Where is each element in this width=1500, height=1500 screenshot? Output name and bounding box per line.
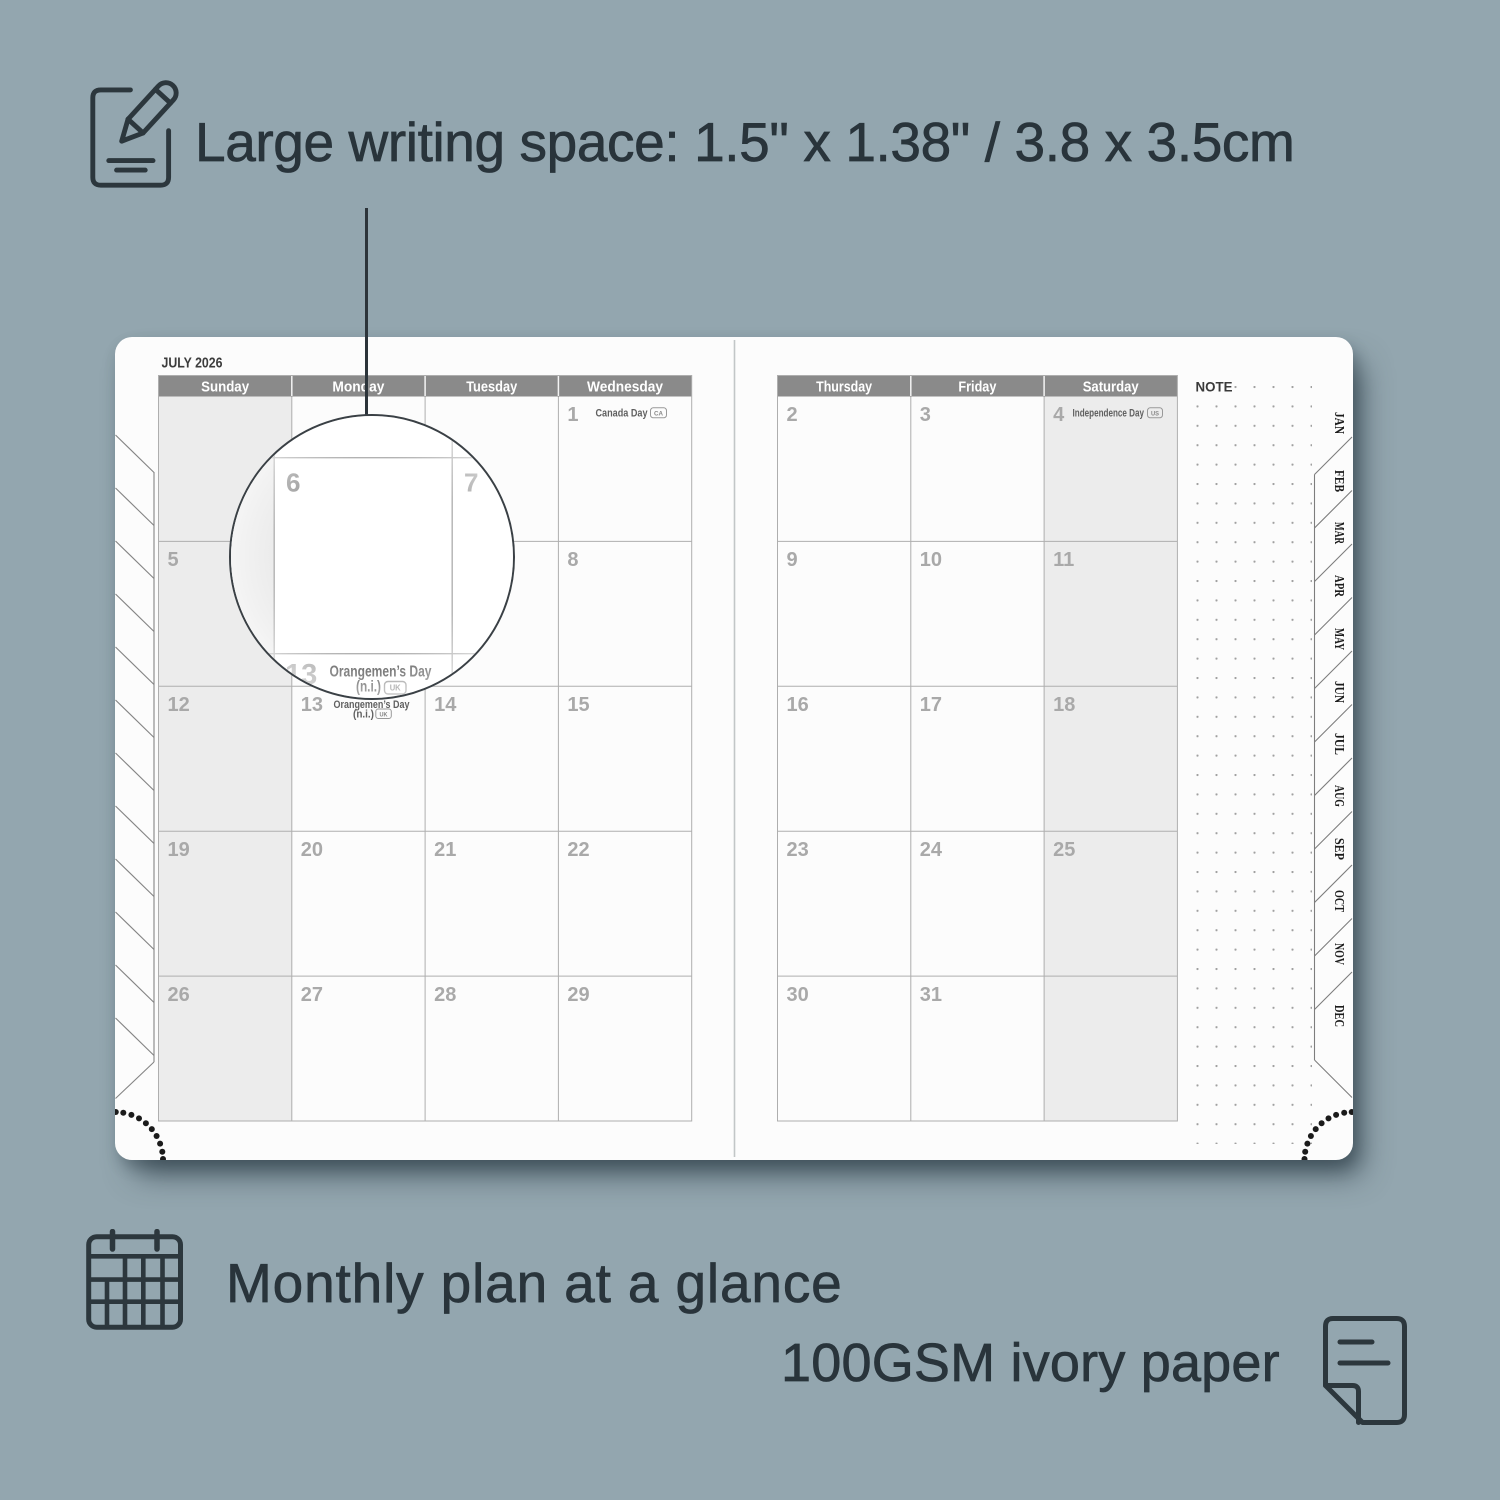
svg-text:MAR: MAR — [1331, 522, 1346, 545]
svg-text:(n.i.): (n.i.) — [353, 709, 374, 721]
svg-text:1: 1 — [567, 404, 578, 426]
svg-text:MAY: MAY — [1331, 628, 1346, 650]
svg-text:JUL: JUL — [1331, 733, 1346, 755]
svg-text:18: 18 — [1053, 694, 1075, 716]
svg-text:Independence Day: Independence Day — [1072, 408, 1144, 420]
svg-text:16: 16 — [786, 694, 808, 716]
svg-text:Thursday: Thursday — [816, 379, 873, 396]
svg-text:12: 12 — [167, 694, 189, 716]
svg-text:30: 30 — [786, 984, 808, 1006]
svg-text:JUN: JUN — [1331, 681, 1346, 703]
svg-text:11: 11 — [1053, 549, 1074, 571]
svg-text:27: 27 — [300, 984, 322, 1006]
svg-text:2: 2 — [786, 404, 797, 426]
svg-text:Friday: Friday — [958, 379, 997, 396]
svg-text:FEB: FEB — [1331, 470, 1346, 492]
svg-text:Canada Day: Canada Day — [595, 408, 648, 420]
svg-text:JULY 2026: JULY 2026 — [161, 356, 222, 372]
svg-text:Sunday: Sunday — [201, 379, 250, 396]
svg-text:23: 23 — [786, 839, 808, 861]
svg-text:20: 20 — [300, 839, 322, 861]
svg-text:3: 3 — [919, 404, 930, 426]
svg-text:8: 8 — [567, 549, 578, 571]
svg-text:15: 15 — [567, 694, 589, 716]
svg-text:Saturday: Saturday — [1082, 379, 1139, 396]
svg-text:OCT: OCT — [1331, 890, 1346, 912]
svg-text:AUG: AUG — [1331, 785, 1346, 807]
svg-text:NOTE: NOTE — [1195, 380, 1232, 395]
svg-text:21: 21 — [434, 839, 456, 861]
svg-text:17: 17 — [919, 694, 941, 716]
svg-text:26: 26 — [167, 984, 189, 1006]
svg-text:5: 5 — [167, 549, 178, 571]
svg-text:UK: UK — [379, 713, 388, 719]
svg-text:CA: CA — [654, 411, 663, 418]
svg-text:31: 31 — [919, 984, 941, 1006]
svg-text:DEC: DEC — [1331, 1005, 1346, 1027]
svg-text:29: 29 — [567, 984, 589, 1006]
svg-text:9: 9 — [786, 549, 797, 571]
svg-text:10: 10 — [919, 549, 941, 571]
svg-text:APR: APR — [1331, 575, 1346, 598]
svg-text:US: US — [1151, 411, 1160, 418]
svg-text:19: 19 — [167, 839, 189, 861]
svg-text:4: 4 — [1053, 404, 1065, 426]
svg-text:14: 14 — [434, 694, 457, 716]
svg-text:JAN: JAN — [1331, 412, 1346, 434]
svg-text:Wednesday: Wednesday — [587, 379, 664, 396]
svg-text:SEP: SEP — [1331, 838, 1346, 860]
svg-text:Tuesday: Tuesday — [466, 379, 518, 396]
svg-text:Monday: Monday — [332, 379, 385, 396]
svg-text:NOV: NOV — [1331, 943, 1346, 965]
svg-text:22: 22 — [567, 839, 589, 861]
svg-text:24: 24 — [919, 839, 942, 861]
svg-text:13: 13 — [300, 694, 322, 716]
svg-text:28: 28 — [434, 984, 456, 1006]
svg-text:25: 25 — [1053, 839, 1075, 861]
